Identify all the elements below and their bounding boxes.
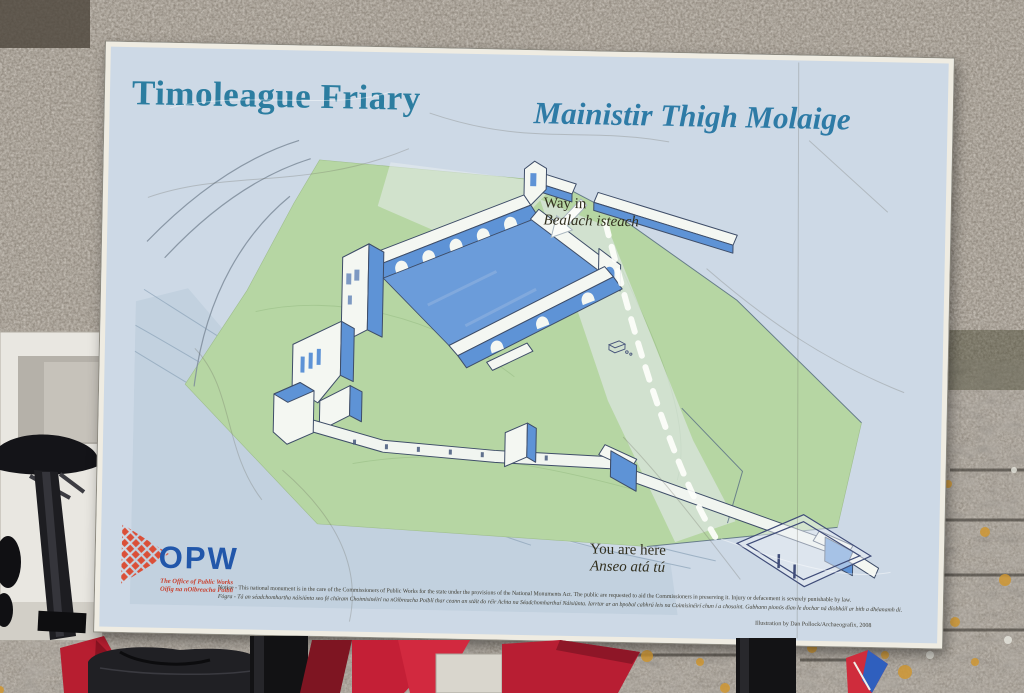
you-are-here-label: You are here Anseo atá tú bbox=[552, 541, 703, 578]
opw-logo: OPW The Office of Public Works Oifig na … bbox=[117, 521, 309, 621]
way-in-label: Way in Bealach isteach bbox=[543, 195, 639, 231]
illustration-credit: Illustration by Dan Pollock/Archaeografi… bbox=[569, 617, 871, 629]
sign-title-irish: Mainistir Thigh Molaige bbox=[533, 95, 851, 137]
sign-title-english: Timoleague Friary bbox=[132, 73, 422, 119]
opw-logo-acronym: OPW bbox=[158, 540, 239, 578]
photo-of-information-sign: Timoleague Friary Mainistir Thigh Molaig… bbox=[0, 0, 1024, 693]
way-in-label-english: Way in bbox=[544, 195, 640, 214]
way-in-label-irish: Bealach isteach bbox=[543, 212, 639, 231]
you-are-here-label-irish: Anseo atá tú bbox=[552, 558, 702, 578]
information-sign-panel: Timoleague Friary Mainistir Thigh Molaig… bbox=[94, 42, 954, 649]
